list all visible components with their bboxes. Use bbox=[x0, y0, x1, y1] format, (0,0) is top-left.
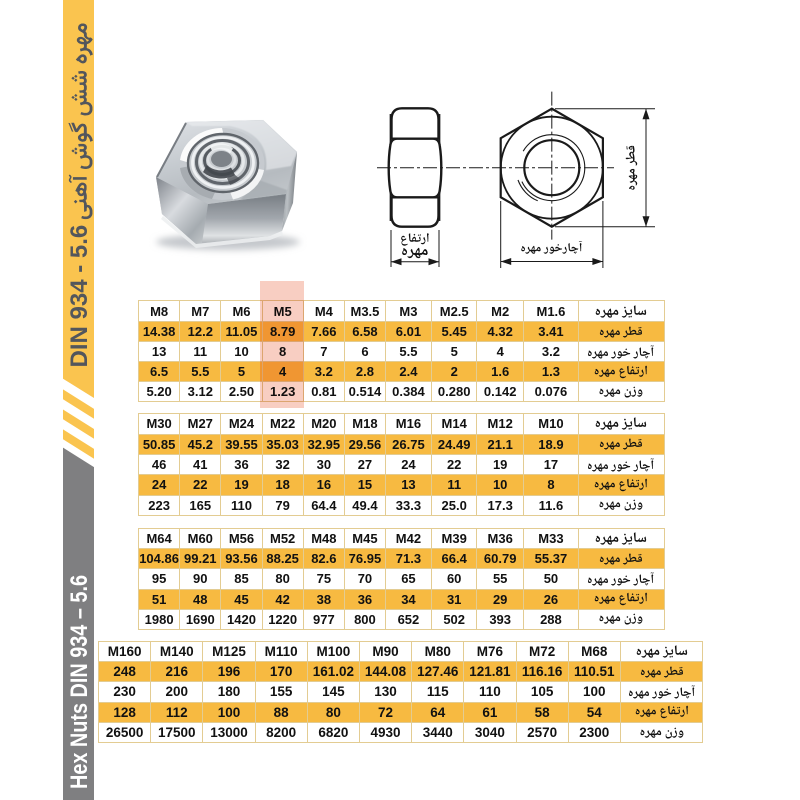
svg-text:DIN 934 - 5.6: DIN 934 - 5.6 bbox=[66, 225, 93, 368]
svg-text:Hex Nuts DIN 934 – 5.6: Hex Nuts DIN 934 – 5.6 bbox=[66, 575, 93, 789]
